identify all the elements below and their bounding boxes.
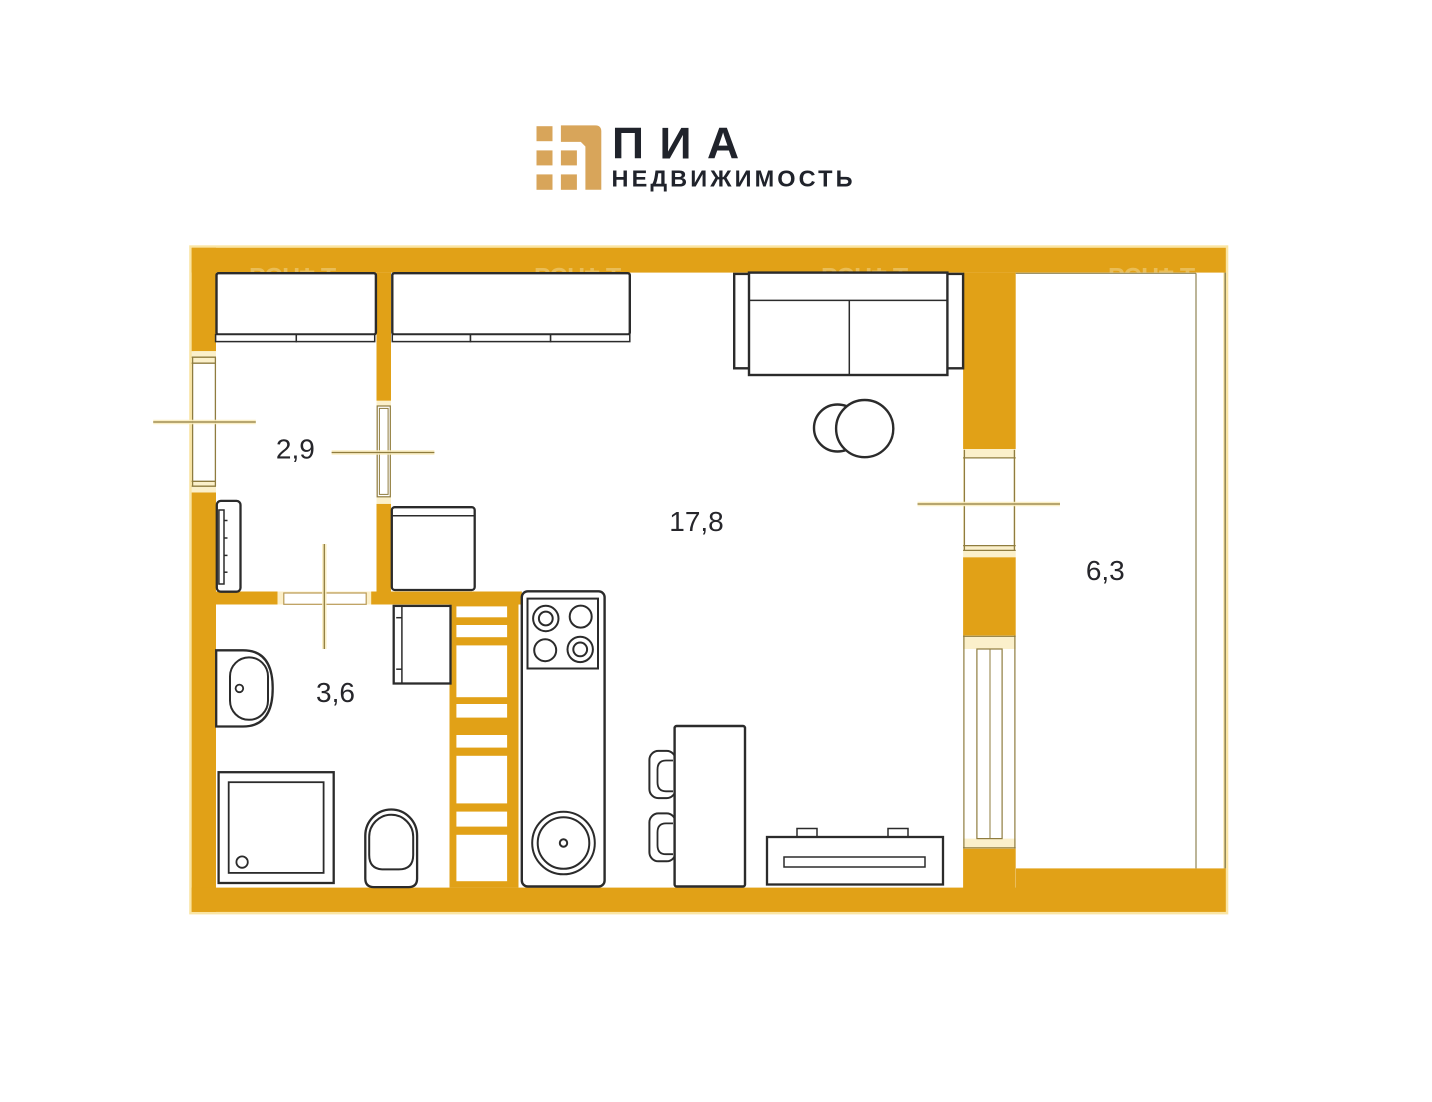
svg-text:3,6: 3,6 bbox=[316, 677, 355, 708]
svg-text:НЕДВИЖИМОСТЬ: НЕДВИЖИМОСТЬ bbox=[612, 166, 856, 192]
svg-text:17,8: 17,8 bbox=[669, 506, 724, 537]
svg-text:6,3: 6,3 bbox=[1086, 555, 1125, 586]
svg-text:ПИА: ПИА bbox=[612, 120, 755, 169]
svg-text:2,9: 2,9 bbox=[276, 434, 315, 465]
